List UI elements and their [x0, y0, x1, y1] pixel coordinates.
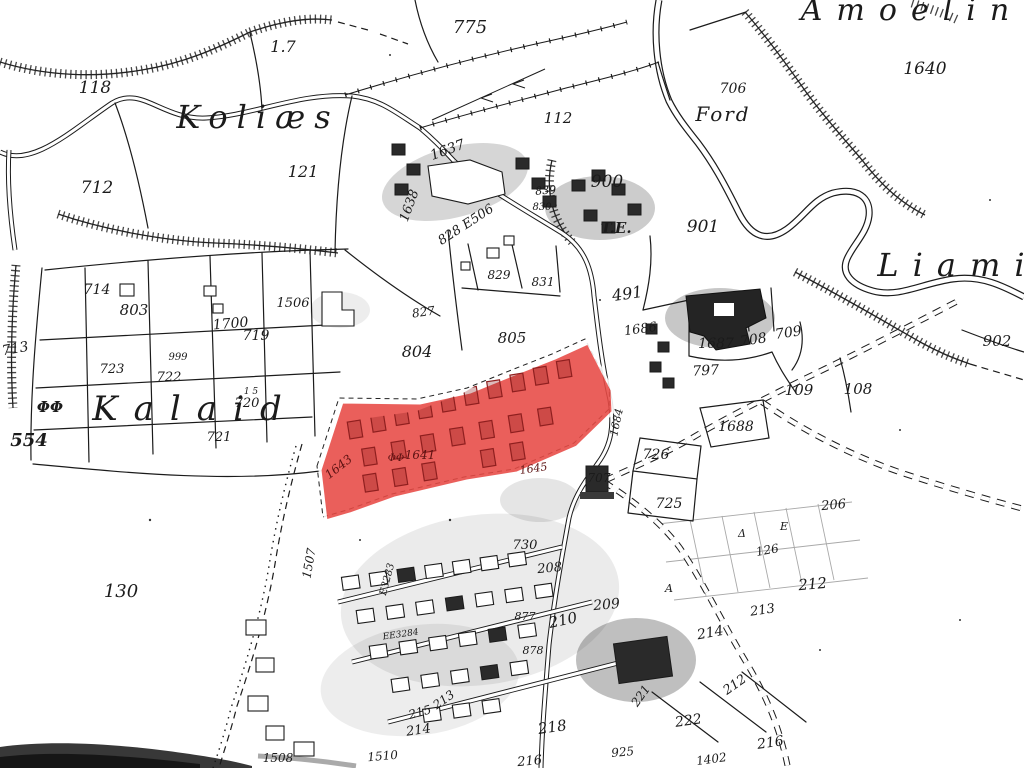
map-label-725: 725 [656, 496, 683, 512]
map-label-liami: Liami [876, 246, 1024, 284]
map-label-831: 831 [532, 275, 555, 289]
map-label--: Δ [737, 527, 746, 540]
map-label-212: 212 [797, 574, 828, 595]
map-label-ford: Ford [694, 102, 750, 126]
map-label-804: 804 [402, 342, 433, 361]
map-label-712: 712 [81, 178, 113, 198]
map-label-730: 730 [513, 538, 538, 553]
map-label-1-7: 1.7 [270, 37, 296, 56]
map-label-a: A [664, 582, 673, 595]
map-label-1510: 1510 [367, 748, 399, 765]
map-label-208: 208 [536, 560, 563, 577]
map-label-722: 722 [157, 370, 182, 385]
map-label-707: 707 [588, 471, 611, 485]
map-label-118: 118 [79, 78, 112, 98]
map-label-719: 719 [243, 328, 270, 344]
map-label-1688: 1688 [718, 419, 754, 435]
map-label--: ΦΦ [388, 453, 404, 464]
map-label-805: 805 [498, 329, 527, 347]
map-label-108: 108 [844, 380, 873, 398]
map-label-999: 999 [168, 352, 188, 363]
map-label-726: 726 [643, 447, 670, 463]
map-label-830: 830 [532, 202, 552, 213]
map-label-216: 216 [516, 753, 543, 768]
map-label-878: 878 [523, 644, 544, 657]
map-label-723: 723 [100, 362, 125, 377]
map-label-109: 109 [785, 381, 814, 399]
map-label-e: E [779, 520, 788, 533]
map-canvas: AmoelinKoliæsLiamiKalaidFordT.E.1181.777… [0, 0, 1024, 768]
map-label-721: 721 [207, 430, 232, 445]
map-label-1508: 1508 [263, 751, 294, 765]
map-label-206: 206 [820, 497, 847, 514]
map-label-1-5: 1 5 [244, 387, 259, 397]
map-label--: ΦΦ [37, 398, 63, 416]
map-label-714: 714 [84, 282, 111, 298]
map-label-902: 902 [983, 332, 1012, 350]
map-label-209: 209 [592, 596, 621, 614]
dark-building-block [613, 636, 672, 683]
map-label-925: 925 [611, 744, 635, 760]
map-label-1506: 1506 [276, 296, 309, 311]
map-label-1640: 1640 [903, 59, 946, 79]
map-label-829: 829 [488, 268, 511, 282]
map-label-775: 775 [453, 17, 487, 38]
map-label-amoelin: Amoelin [798, 0, 1023, 28]
map-label-koli-s: Koliæs [175, 98, 339, 136]
map-label-130: 130 [104, 581, 138, 602]
map-label-900: 900 [591, 172, 624, 192]
map-label-121: 121 [288, 162, 319, 181]
map-label-901: 901 [687, 217, 719, 237]
cadastral-map: AmoelinKoliæsLiamiKalaidFordT.E.1181.777… [0, 0, 1024, 768]
map-label-kalaid: Kalaid [91, 389, 297, 429]
map-label-t-e-: T.E. [600, 219, 631, 237]
map-label-720: 720 [235, 396, 260, 411]
map-label-839: 839 [535, 183, 557, 198]
map-label-706: 706 [720, 81, 747, 97]
map-label-877: 877 [515, 610, 536, 623]
map-label-1687: 1687 [698, 336, 734, 352]
map-label-803: 803 [120, 301, 149, 319]
map-label-1641: 1641 [405, 448, 436, 462]
map-label-554: 554 [10, 430, 48, 451]
map-label-112: 112 [544, 109, 573, 127]
map-label-797: 797 [692, 362, 720, 379]
